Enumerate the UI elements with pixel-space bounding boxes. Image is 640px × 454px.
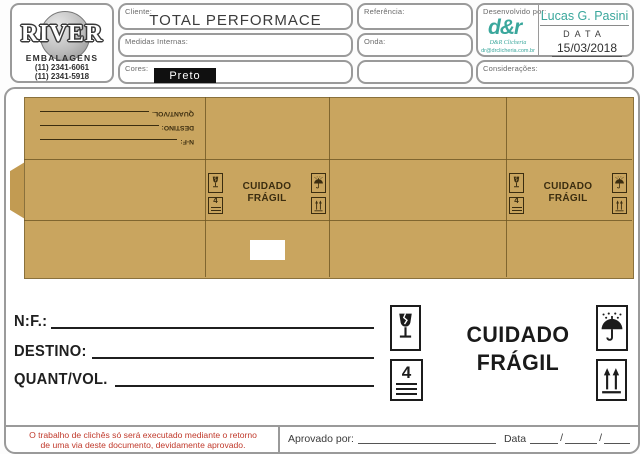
fold-line: [24, 220, 632, 221]
blank-line: [92, 357, 374, 359]
icon-column: [612, 173, 627, 214]
developer-name: Lucas G. Pasini: [540, 9, 629, 26]
desenvolvido-box: Desenvolvido por: d&r D&R Clicheria dr@d…: [476, 3, 634, 57]
divider: [538, 5, 539, 55]
cliente-box: Cliente: TOTAL PERFORMACE: [118, 3, 353, 30]
company-phone-1: (11) 2341-6061: [12, 63, 112, 72]
destino-label: DESTINO:: [14, 343, 87, 361]
slash: /: [560, 432, 563, 444]
stack-limit-number: 4: [213, 197, 217, 205]
stack-lines: [396, 383, 417, 397]
company-subtitle: EMBALAGENS: [12, 53, 112, 63]
company-name: RIVER: [12, 21, 112, 48]
icon-column: 4: [208, 173, 223, 214]
cores-box: Cores: Preto: [118, 60, 353, 84]
company-logo-box: RIVER EMBALAGENS (11) 2341-6061 (11) 234…: [10, 3, 114, 83]
month-line: [565, 433, 597, 444]
fold-line: [24, 159, 632, 160]
quant-row: QUANT/VOL.: [14, 371, 374, 389]
year-line: [604, 433, 630, 444]
rotated-nf-row: N-F:: [40, 138, 194, 152]
clicheria-approval-document: { "header": { "logo": { "title": "RIVER"…: [0, 0, 640, 453]
aprovado-label: Aprovado por:: [288, 433, 354, 445]
desenvolvido-label: Desenvolvido por:: [483, 7, 546, 16]
blank-line: [40, 139, 177, 140]
keep-dry-icon: [596, 305, 628, 351]
footer-divider: [278, 425, 280, 452]
rotated-quant-label: QUANT/VOL.: [152, 110, 194, 117]
day-line: [530, 433, 558, 444]
stack-limit-icon: 4: [208, 197, 223, 214]
caution-line-1: CUIDADO: [434, 321, 601, 349]
stack-limit-icon: 4: [390, 359, 423, 401]
stack-limit-number: 4: [402, 364, 411, 381]
die-cut-drawing-area: N-F: DESTINO: QUANT/VOL. 4 CUIDADO FRÁGI…: [4, 87, 640, 454]
this-way-up-icon: [596, 359, 627, 401]
caution-text: CUIDADO FRÁGIL: [243, 181, 292, 206]
blank-line: [115, 385, 374, 387]
icon-column: [311, 173, 326, 214]
medidas-internas-box: Medidas Internas:: [118, 33, 353, 57]
date-value: 15/03/2018: [552, 41, 622, 57]
icon-column: 4: [509, 173, 524, 214]
fold-line: [205, 97, 206, 277]
keep-dry-icon: [311, 173, 326, 193]
glue-tab: [10, 162, 25, 219]
fold-line: [329, 97, 330, 277]
notice-line-2: de uma via deste documento, devidamente …: [10, 440, 276, 450]
dr-clicheria-logo-icon: d&r: [488, 16, 521, 40]
consideracoes-label: Considerações:: [483, 64, 538, 73]
label-knockout: [250, 240, 285, 260]
fold-line: [506, 97, 507, 277]
this-way-up-icon: [311, 197, 326, 214]
cliente-value: TOTAL PERFORMACE: [120, 12, 351, 29]
caution-line-2: FRÁGIL: [434, 349, 601, 377]
blank-line: [40, 111, 149, 112]
stack-limit-icon: 4: [509, 197, 524, 214]
color-badge: Preto: [154, 68, 216, 83]
data-label: DATA: [540, 29, 629, 39]
approval-notice: O trabalho de clichês só será executado …: [10, 430, 276, 450]
caution-text: CUIDADO FRÁGIL: [544, 181, 593, 206]
caution-line-2: FRÁGIL: [544, 193, 593, 206]
nf-row: N:F.:: [14, 313, 374, 331]
quant-label: QUANT/VOL.: [14, 371, 108, 389]
company-phone-2: (11) 2341-5918: [12, 72, 112, 81]
blank-line: [51, 327, 374, 329]
fragile-icon: [509, 173, 524, 193]
blank-line: [40, 125, 159, 126]
rotated-nf-label: N-F:: [180, 138, 194, 145]
footer-separator: [6, 425, 638, 427]
rotated-quant-row: QUANT/VOL.: [40, 110, 194, 124]
keep-dry-icon: [612, 173, 627, 193]
rotated-destino-label: DESTINO:: [162, 124, 194, 131]
carton-caution-group-2: 4 CUIDADO FRÁGIL: [509, 168, 627, 218]
referencia-box: Referência:: [357, 3, 473, 30]
carton-caution-group-1: 4 CUIDADO FRÁGIL: [208, 168, 326, 218]
fragile-icon: [390, 305, 421, 351]
stack-lines: [211, 207, 221, 214]
referencia-label: Referência:: [364, 7, 405, 16]
approval-signature-row: Aprovado por: Data / /: [288, 432, 630, 445]
consideracoes-box: Considerações:: [476, 60, 634, 84]
fragile-icon: [208, 173, 223, 193]
extra-empty-box: [357, 60, 473, 84]
slash: /: [599, 432, 602, 444]
rotated-destino-row: DESTINO:: [40, 124, 194, 138]
stack-lines: [512, 207, 522, 214]
caution-line-2: FRÁGIL: [243, 193, 292, 206]
destino-row: DESTINO:: [14, 343, 374, 361]
dr-clicheria-email: dr@drclicheria.com.br: [478, 48, 538, 54]
stack-limit-number: 4: [514, 197, 518, 205]
onda-box: Onda:: [357, 33, 473, 57]
signature-line: [358, 433, 496, 444]
caution-line-1: CUIDADO: [243, 181, 292, 194]
onda-label: Onda:: [364, 37, 385, 46]
medidas-label: Medidas Internas:: [125, 37, 188, 46]
cores-label: Cores:: [125, 64, 148, 73]
data-label: Data: [504, 433, 526, 445]
this-way-up-icon: [612, 197, 627, 214]
dr-clicheria-caption: D&R Clicheria: [480, 40, 536, 46]
rotated-shipping-fields: N-F: DESTINO: QUANT/VOL.: [40, 108, 194, 152]
nf-label: N:F.:: [14, 313, 47, 331]
notice-line-1: O trabalho de clichês só será executado …: [10, 430, 276, 440]
caution-text-large: CUIDADO FRÁGIL: [434, 321, 601, 377]
caution-line-1: CUIDADO: [544, 181, 593, 194]
